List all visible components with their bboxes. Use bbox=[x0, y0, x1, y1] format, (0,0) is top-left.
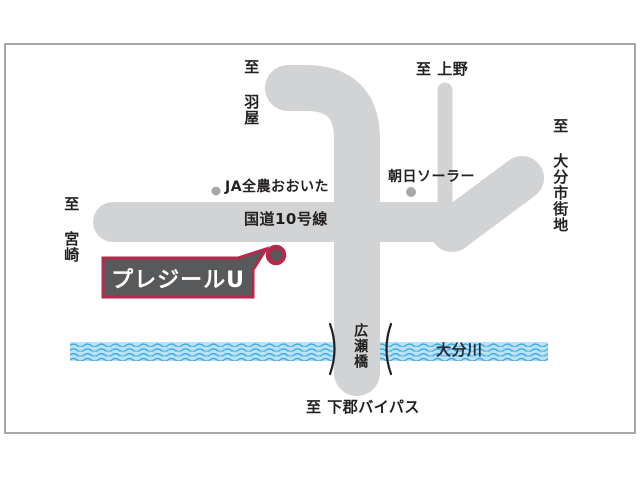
label-hirose-bridge: 広瀬橋 bbox=[352, 323, 367, 370]
ja-zennoh-dot bbox=[212, 187, 221, 196]
destination-label: プレジールU bbox=[103, 258, 253, 297]
destination-marker bbox=[268, 247, 284, 263]
label-to-miyazaki: 至 宮崎 bbox=[63, 196, 79, 263]
label-ja-zennoh-oita: JA全農おおいた bbox=[225, 180, 329, 195]
label-to-oita-city: 至 大分市街地 bbox=[552, 118, 568, 233]
asahi-solar-dot bbox=[406, 187, 416, 197]
road-to-oita-city bbox=[452, 178, 522, 230]
access-map: 至 羽屋 至 上野 至 大分市街地 JA全農おおいた 朝日ソーラー 国道10号線… bbox=[0, 0, 640, 480]
label-to-haneya: 至 羽屋 bbox=[243, 59, 259, 126]
label-route10: 国道10号線 bbox=[244, 211, 328, 227]
label-to-shimogori-bypass: 至 下郡バイパス bbox=[306, 399, 420, 415]
label-asahi-solar: 朝日ソーラー bbox=[388, 170, 475, 185]
label-to-ueno: 至 上野 bbox=[416, 61, 468, 77]
label-oita-river: 大分川 bbox=[436, 342, 483, 358]
